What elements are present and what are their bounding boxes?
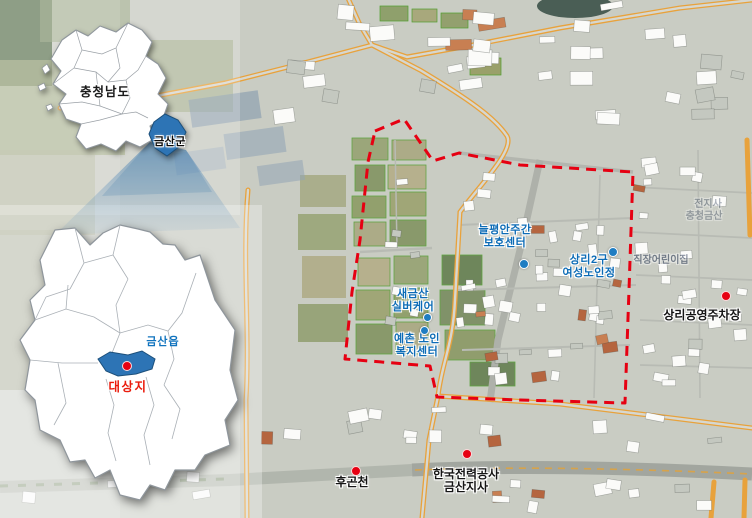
marker-neulpyeongan bbox=[519, 259, 529, 269]
facility-label-sangni2gu: 상리2구 여성노인정 bbox=[562, 254, 615, 279]
marker-saegeumsan bbox=[423, 313, 432, 322]
target-site-label: 대상지 bbox=[108, 376, 147, 395]
marker-kepco bbox=[462, 449, 472, 459]
province-label: 충청남도 bbox=[80, 81, 130, 100]
poi-label-hugoncheon: 후곤천 bbox=[335, 476, 368, 489]
target-site-marker bbox=[122, 361, 132, 371]
map-figure: 충청남도 금산군 금산읍 대상지 늘평안주간 보호센터 상리2구 여성노인정 새… bbox=[0, 0, 752, 518]
poi-label-kepco: 한국전력공사 금산지사 bbox=[433, 468, 499, 493]
facility-label-neulpyeongan: 늘평안주간 보호센터 bbox=[478, 224, 531, 249]
basemap-text-2: 충청금산 bbox=[686, 207, 723, 222]
marker-hugoncheon bbox=[351, 466, 361, 476]
town-label: 금산읍 bbox=[146, 333, 179, 349]
marker-yechon bbox=[420, 326, 429, 335]
facility-label-yechon: 예촌 노인 복지센터 bbox=[394, 333, 440, 358]
facility-label-saegeumsan: 새금산 실버케어 bbox=[392, 288, 434, 313]
marker-sangni2gu bbox=[608, 247, 618, 257]
poi-label-parking: 상리공영주차장 bbox=[663, 309, 740, 322]
marker-parking bbox=[721, 291, 731, 301]
county-highlight-label: 금산군 bbox=[154, 133, 186, 149]
basemap-text-3: 직장어린이집 bbox=[633, 251, 688, 266]
